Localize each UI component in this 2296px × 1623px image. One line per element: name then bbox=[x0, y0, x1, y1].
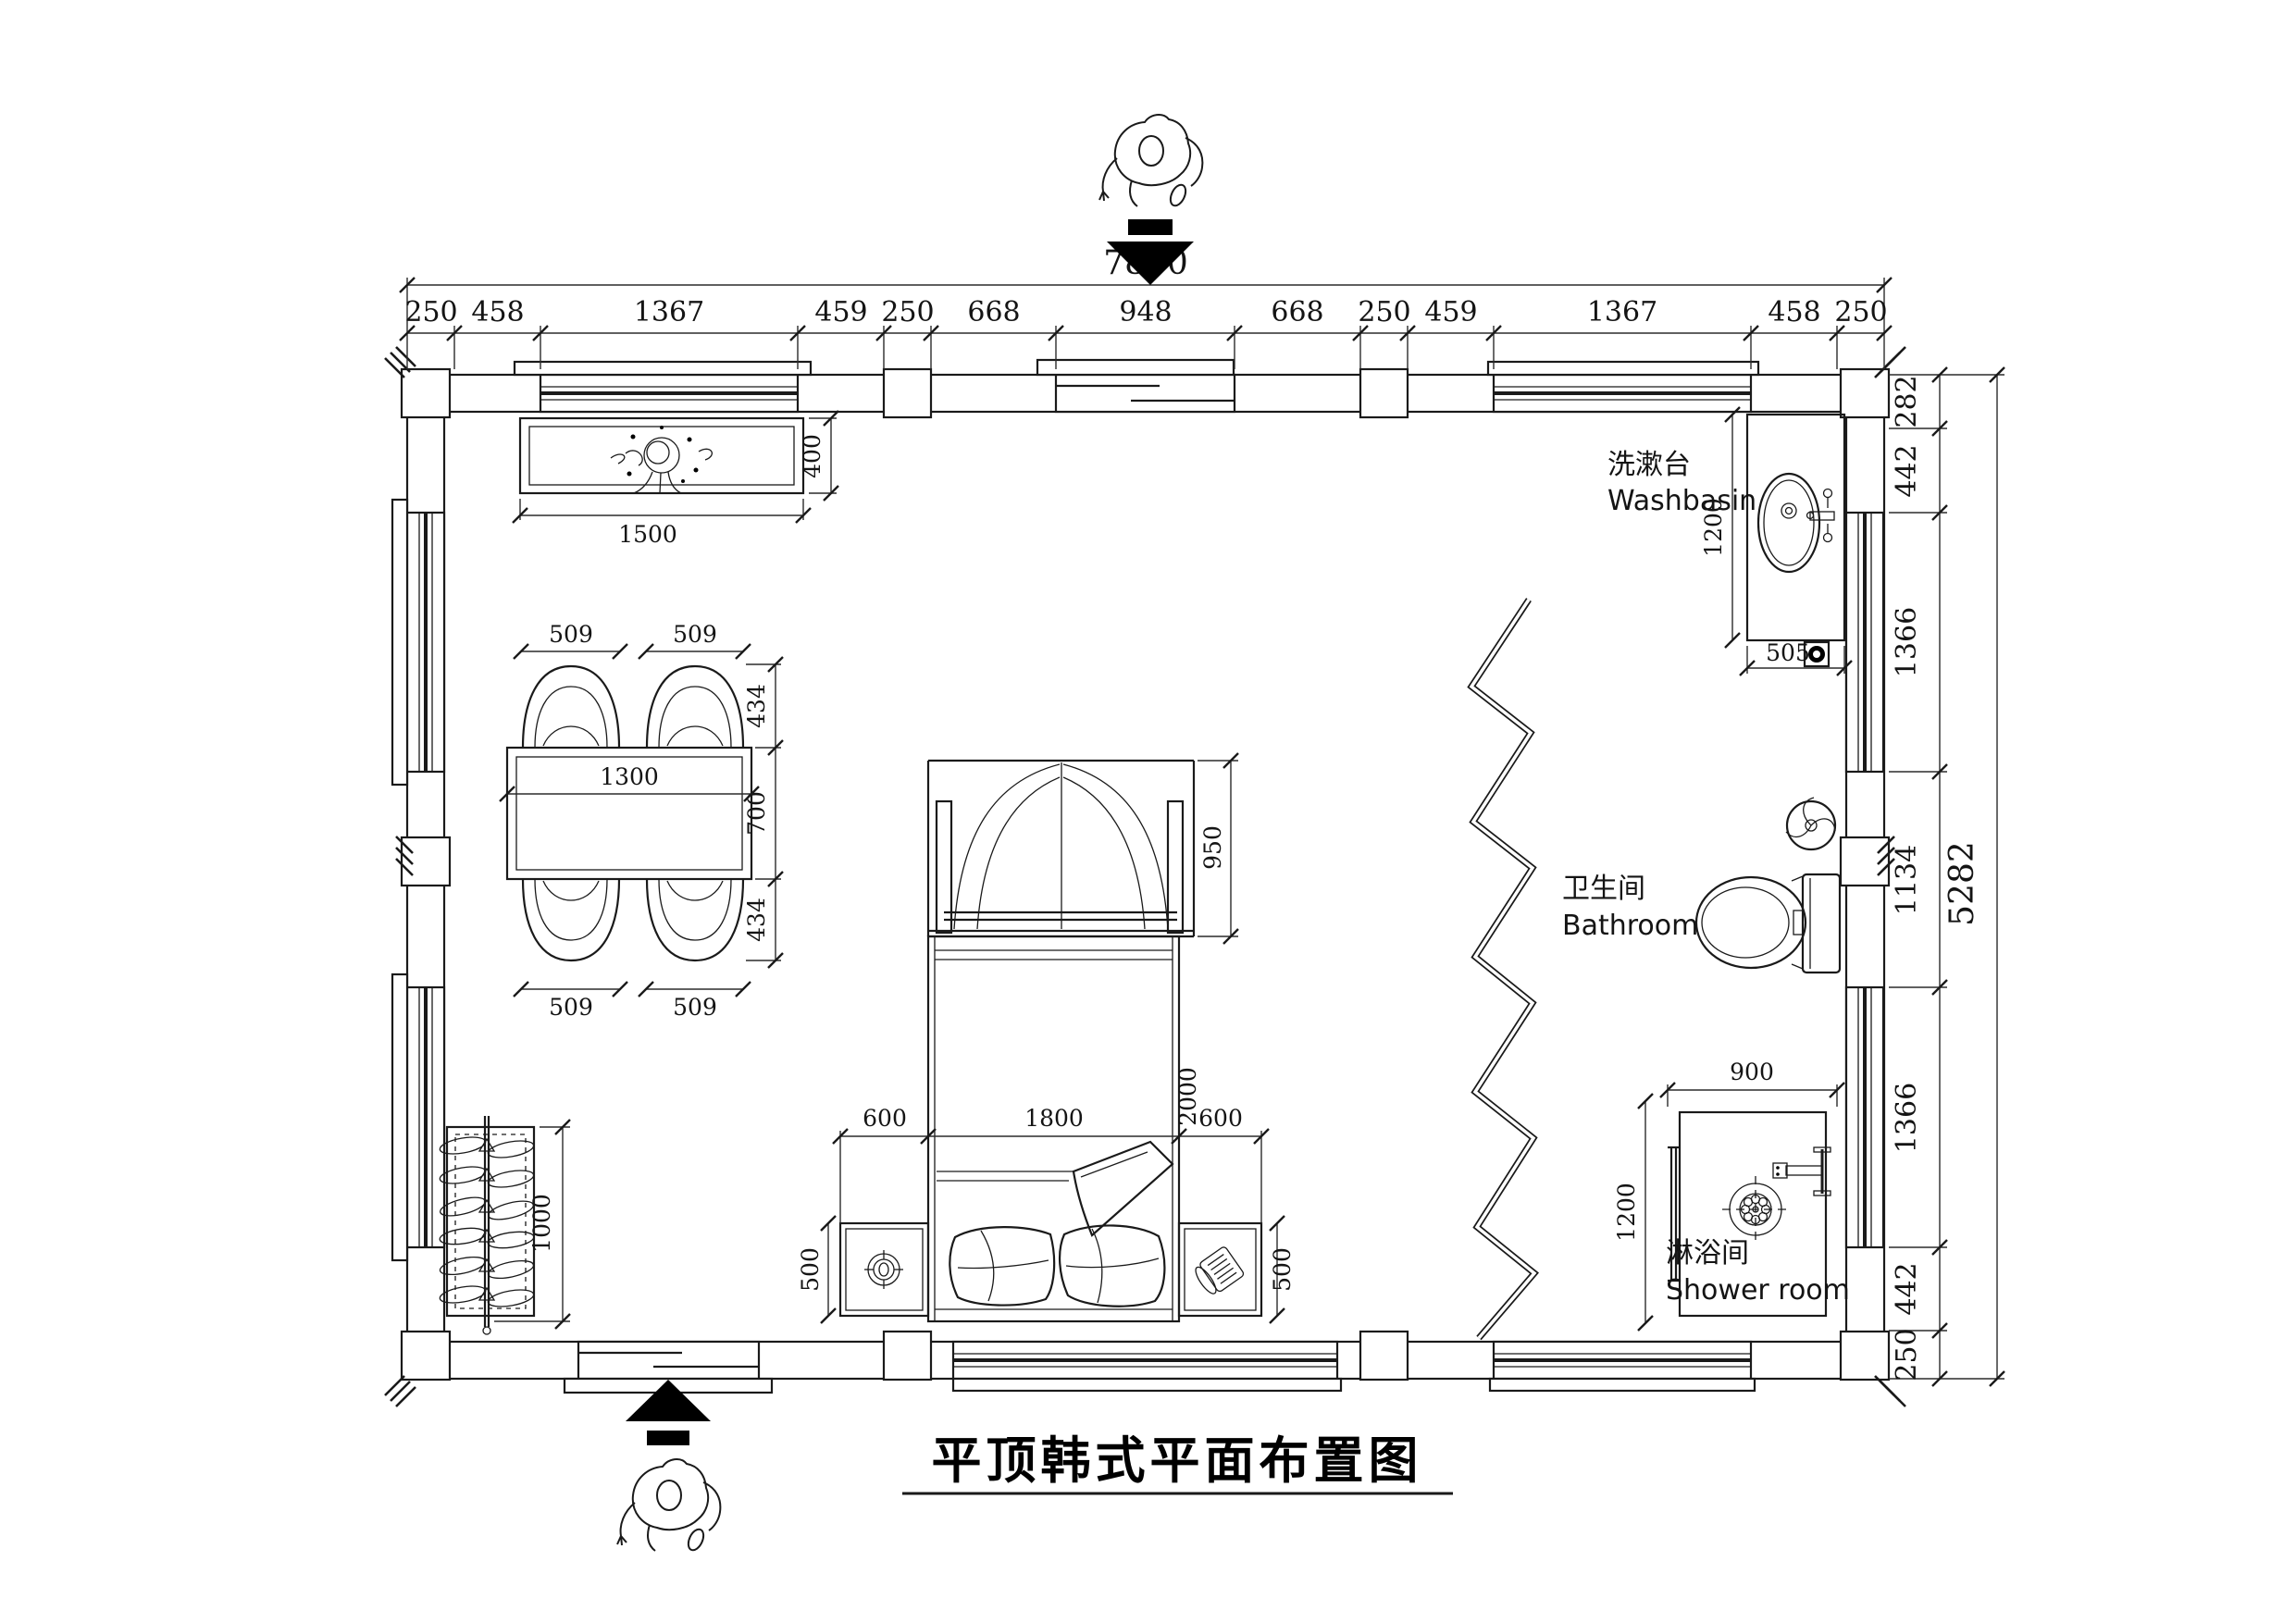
window-left-lower bbox=[392, 974, 444, 1260]
window-bottom-right bbox=[1490, 1342, 1755, 1391]
dim-top-seg: 668 bbox=[1271, 296, 1323, 328]
dim-bed-side: 600 bbox=[1198, 1105, 1243, 1132]
toilet bbox=[1696, 874, 1840, 973]
dim-chair-width: 509 bbox=[549, 621, 593, 648]
dim-shower-depth: 1200 bbox=[1613, 1183, 1640, 1242]
chair bbox=[647, 666, 743, 748]
nightstand-left bbox=[840, 1223, 928, 1316]
dim-basin-width: 505 bbox=[1766, 639, 1810, 666]
hangers bbox=[439, 1134, 535, 1309]
dim-top-seg: 250 bbox=[1834, 296, 1887, 328]
dim-right-seg: 1366 bbox=[1891, 607, 1923, 677]
dim-right-seg: 250 bbox=[1891, 1328, 1923, 1381]
dim-right-seg: 1366 bbox=[1891, 1083, 1923, 1153]
telephone-icon bbox=[1191, 1245, 1245, 1297]
dim-top-seg: 250 bbox=[881, 296, 934, 328]
dim-chair-depth: 434 bbox=[743, 898, 770, 942]
pillow bbox=[949, 1227, 1054, 1305]
dim-chair-depth: 434 bbox=[743, 684, 770, 728]
door-top bbox=[1037, 360, 1235, 412]
label-washbasin-zh: 洗漱台 bbox=[1607, 449, 1691, 481]
dim-right-seg: 442 bbox=[1891, 1262, 1923, 1315]
dimension-chain-right: 282 442 1366 1134 1366 442 250 5282 bbox=[1889, 367, 2004, 1386]
bed-canopy bbox=[928, 761, 1194, 936]
person-top-icon bbox=[1099, 115, 1202, 208]
plant-icon bbox=[611, 426, 712, 493]
shower-head-icon bbox=[1773, 1147, 1831, 1196]
dim-bed-width: 1800 bbox=[1024, 1105, 1084, 1132]
dim-cabinet-length: 1500 bbox=[618, 521, 677, 548]
dim-bed-side: 600 bbox=[863, 1105, 907, 1132]
dim-cabinet-depth: 400 bbox=[799, 434, 825, 478]
dim-top-seg: 250 bbox=[404, 296, 457, 328]
shower-room: 900 1200 淋浴间 Shower room bbox=[1613, 1059, 1850, 1331]
label-washbasin-en: Washbasin bbox=[1607, 485, 1756, 517]
faucet-icon bbox=[1807, 489, 1835, 542]
dim-nightstand: 500 bbox=[797, 1247, 824, 1292]
dim-top-seg: 459 bbox=[1424, 296, 1477, 328]
dim-top-seg: 668 bbox=[967, 296, 1020, 328]
dim-shower-width: 900 bbox=[1730, 1059, 1774, 1085]
label-bathroom-zh: 卫生间 bbox=[1562, 873, 1645, 905]
dim-table-length: 1300 bbox=[600, 763, 659, 790]
dim-top-seg: 1367 bbox=[634, 296, 704, 328]
dim-right-seg: 282 bbox=[1891, 375, 1923, 427]
window-top-right bbox=[1488, 362, 1758, 412]
console-cabinet: 1500 400 bbox=[513, 411, 838, 548]
dim-top-seg: 1367 bbox=[1587, 296, 1657, 328]
floor-plan-drawing: 7850 250 458 1367 459 250 668 948 668 25… bbox=[0, 0, 2296, 1623]
folding-partition bbox=[1471, 600, 1534, 1338]
window-bottom-center bbox=[953, 1342, 1341, 1391]
label-bathroom-en: Bathroom bbox=[1562, 910, 1698, 942]
floor-plan-page: 7850 250 458 1367 459 250 668 948 668 25… bbox=[0, 0, 2296, 1623]
shower-drain-icon bbox=[1722, 1176, 1789, 1243]
entry-marker-bottom bbox=[617, 1380, 720, 1553]
dim-nightstand: 500 bbox=[1269, 1247, 1296, 1292]
lamp-icon bbox=[864, 1250, 903, 1289]
dim-right-seg: 442 bbox=[1891, 444, 1923, 497]
wardrobe-rack: 1000 bbox=[439, 1116, 570, 1334]
washbasin-counter: 1200 505 洗漱台 Washbasin bbox=[1607, 407, 1852, 675]
window-top-left bbox=[515, 362, 811, 412]
drawing-title: 平顶韩式平面布置图 bbox=[902, 1431, 1453, 1493]
nightstand-right bbox=[1179, 1223, 1261, 1316]
label-shower-zh: 淋浴间 bbox=[1666, 1237, 1749, 1270]
blanket bbox=[937, 1142, 1173, 1235]
dim-top-seg: 459 bbox=[814, 296, 867, 328]
dim-top-seg: 250 bbox=[1358, 296, 1410, 328]
dim-headboard: 950 bbox=[1199, 825, 1226, 870]
arrow-bar bbox=[647, 1431, 689, 1445]
bathroom-fixtures: 卫生间 Bathroom bbox=[1562, 798, 1840, 973]
dining-set: 509 509 509 509 434 700 434 1300 bbox=[500, 621, 783, 1021]
dim-chair-width: 509 bbox=[673, 994, 717, 1021]
window-right-lower bbox=[1846, 987, 1883, 1247]
title-text: 平顶韩式平面布置图 bbox=[932, 1431, 1423, 1490]
window-left-upper bbox=[392, 500, 444, 785]
dim-top-seg: 458 bbox=[1768, 296, 1820, 328]
dim-wardrobe: 1000 bbox=[528, 1194, 555, 1253]
dim-chair-width: 509 bbox=[673, 621, 717, 648]
dim-right-overall: 5282 bbox=[1943, 841, 1981, 926]
chair bbox=[647, 879, 743, 960]
label-shower-en: Shower room bbox=[1666, 1274, 1850, 1307]
pillow bbox=[1060, 1225, 1164, 1306]
dim-bed-length: 2000 bbox=[1174, 1067, 1201, 1126]
window-right-upper bbox=[1846, 513, 1883, 772]
dim-top-seg: 948 bbox=[1119, 296, 1172, 328]
dim-right-seg: 1134 bbox=[1891, 845, 1923, 915]
bed-group: 600 1800 600 2000 950 500 500 bbox=[797, 753, 1296, 1323]
dim-top-seg: 458 bbox=[471, 296, 524, 328]
arrow-bar bbox=[1128, 219, 1173, 235]
chair bbox=[523, 666, 619, 748]
exhaust-fan-icon bbox=[1786, 798, 1835, 849]
chair bbox=[523, 879, 619, 960]
dim-chair-width: 509 bbox=[549, 994, 593, 1021]
person-bottom-icon bbox=[617, 1459, 720, 1553]
